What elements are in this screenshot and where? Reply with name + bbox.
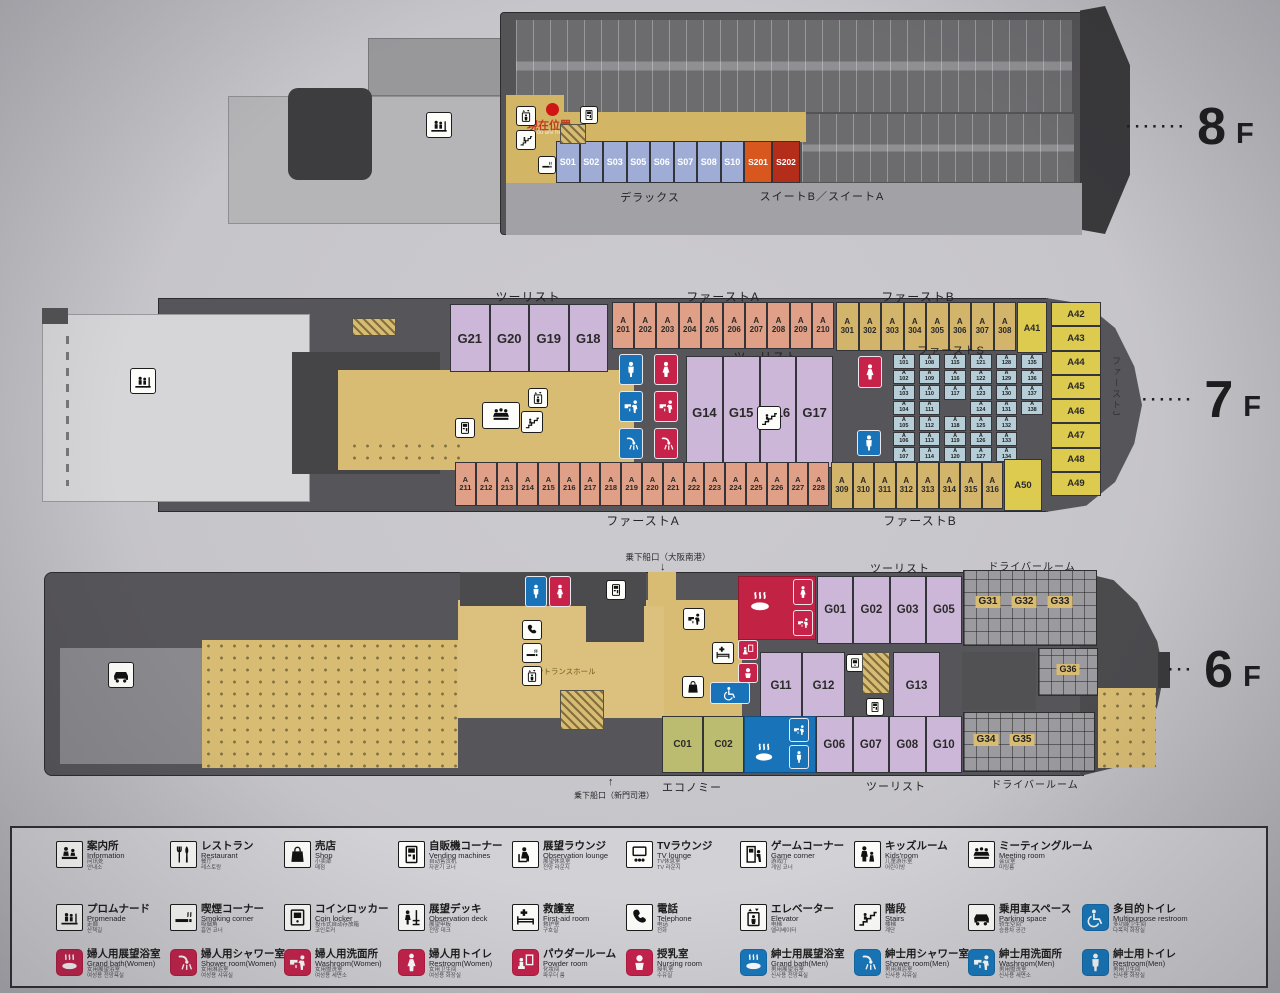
capsule-cabin: A 121	[970, 354, 992, 369]
cabin: A48	[1051, 448, 1101, 472]
capsule-cabin: A 125	[970, 416, 992, 431]
zone-label-tourist-top: ツーリスト	[495, 288, 560, 305]
legend-label-kr: 코인로커	[315, 929, 389, 935]
capsule-cabin: A 117	[944, 385, 966, 400]
driver-room-g31: G31	[976, 596, 1001, 608]
legend-label-kr: 파우더 룸	[543, 974, 616, 980]
deck7-stern-deck	[42, 314, 310, 502]
capsule-cabin: A 116	[944, 370, 966, 385]
legend-text: プロムナード Promenade 走廊 산책길	[87, 904, 150, 935]
legend-item: TVラウンジ TV lounge TV休息室 TV 라운지	[626, 841, 740, 872]
legend-item: ミーティングルーム Meeting room 会议室 미팅룸	[968, 841, 1082, 872]
cabin: A 223	[704, 462, 725, 506]
legend-label-kr: 안내소	[87, 866, 125, 872]
capsule-cabin: A 118	[944, 416, 966, 431]
legend-icon	[56, 841, 83, 868]
driver-room-g34: G34	[974, 734, 999, 746]
legend-icon	[56, 949, 83, 976]
cabin: A 314	[939, 462, 961, 509]
womens-restroom-icon	[858, 356, 882, 388]
legend-icon	[854, 904, 881, 931]
legend-icon	[854, 949, 881, 976]
legend-label-kr: 자판기 코너	[429, 866, 503, 872]
powder-room-icon	[738, 640, 758, 660]
floor-dots: ∙∙∙∙∙∙	[1142, 390, 1194, 410]
mens-washroom-icon	[619, 391, 643, 422]
legend-row-2: プロムナード Promenade 走廊 산책길 喫煙コーナー Smoking c…	[12, 904, 1266, 935]
zone-label-driver-bottom: ドライバールーム	[991, 776, 1079, 791]
deck6-restaurant-floor	[202, 640, 458, 768]
deck6-driver-lounge	[1098, 688, 1156, 768]
legend-icon	[626, 841, 653, 868]
legend-item: 紳士用洗面所 Washroom(Men) 男用盥洗室 신사용 세면소	[968, 949, 1082, 980]
womens-restroom-icon	[549, 576, 571, 607]
powder-room-icon	[683, 608, 705, 630]
legend-item: プロムナード Promenade 走廊 산책길	[56, 904, 170, 935]
mens-restroom-icon	[857, 430, 881, 456]
legend-icon	[1082, 949, 1109, 976]
capsule-cabin: A 133	[996, 432, 1018, 447]
telephone-icon	[522, 620, 542, 640]
cabin: S01	[556, 141, 580, 183]
cabin: A 301	[836, 302, 859, 351]
legend-item: キッズルーム Kids'room 儿童游乐室 어린이방	[854, 841, 968, 872]
first-aid-room-icon	[712, 642, 734, 664]
legend-item: 展望デッキ Observation deck 展望甲板 전망 데크	[398, 904, 512, 935]
cabin: A 207	[745, 302, 767, 349]
capsule-cabin: A 111	[919, 401, 941, 416]
stairs-icon	[521, 411, 543, 433]
legend-item: 授乳室 Nursing room 授乳室 수유실	[626, 949, 740, 980]
cabin: A45	[1051, 375, 1101, 399]
driver-room-g33: G33	[1048, 596, 1073, 608]
legend-label-kr: 신사용 전망욕실	[771, 974, 845, 980]
legend-text: 紳士用シャワー室 Shower room(Men) 男用淋浴室 신사용 샤워실	[885, 949, 969, 980]
legend-icon	[740, 904, 767, 931]
legend-icon	[968, 841, 995, 868]
capsule-cabin: A 103	[893, 385, 915, 400]
elevator-icon	[522, 666, 542, 686]
womens-washroom-icon	[654, 391, 678, 422]
legend-text: ゲームコーナー Game corner 游戏厅 게임 코너	[771, 841, 844, 872]
cabin: A 228	[808, 462, 829, 506]
capsule-cabin: A 114	[919, 447, 941, 462]
capsule-cabin: A 129	[996, 370, 1018, 385]
legend-text: TVラウンジ TV lounge TV休息室 TV 라운지	[657, 841, 712, 872]
capsule-cabin: A 132	[996, 416, 1018, 431]
cabin: S08	[697, 141, 721, 183]
cabin: A 222	[684, 462, 705, 506]
legend-item: ゲームコーナー Game corner 游戏厅 게임 코너	[740, 841, 854, 872]
legend-icon	[398, 841, 425, 868]
cabin: S03	[603, 141, 627, 183]
legend-icon	[626, 949, 653, 976]
deck8-superstructure-wing	[368, 38, 510, 96]
cabin: G14	[686, 356, 723, 468]
legend-icon	[512, 841, 539, 868]
gate-arrow-up: ↑	[608, 776, 614, 788]
legend-text: 救護室 First-aid room 救护室 구호실	[543, 904, 589, 935]
deck7-stairwell-hatch-top	[352, 318, 396, 336]
capsule-cabin: A 122	[970, 370, 992, 385]
legend-icon	[968, 904, 995, 931]
womens-washroom-icon	[793, 610, 813, 636]
cabin: C02	[703, 716, 744, 773]
zone-label-tourist-bottom: ツーリスト	[866, 778, 926, 794]
zone-label-first-a-bottom: ファーストA	[606, 512, 679, 529]
legend-label-kr: 다목적 화장실	[1113, 929, 1188, 935]
legend-icon	[170, 904, 197, 931]
deck6-economy-cabins: C01C02	[662, 716, 744, 773]
stairwell-hatch	[560, 124, 586, 144]
cabin: A42	[1051, 302, 1101, 326]
suite-cabin: S202	[772, 141, 800, 183]
floor-suffix: F	[1236, 120, 1254, 149]
deck7-lobby-seating	[348, 440, 468, 468]
legend-text: 案内所 Information 问讯处 안내소	[87, 841, 125, 872]
you-are-here-dot	[546, 103, 559, 116]
legend-item: 紳士用トイレ Restroom(Men) 男用卫生间 신사용 화장실	[1082, 949, 1196, 980]
cabin: C01	[662, 716, 703, 773]
cabin: A 309	[831, 462, 853, 509]
legend-icon	[170, 949, 197, 976]
legend-text: 売店 Shop 小卖部 매점	[315, 841, 336, 872]
multipurpose-restroom-icon	[710, 682, 750, 704]
cabin: A 202	[634, 302, 656, 349]
legend-icon	[170, 841, 197, 868]
cabin: G07	[853, 716, 890, 773]
legend-label-kr: 계단	[885, 929, 906, 935]
cabin: G03	[890, 576, 926, 644]
legend-text: コインロッカー Coin locker 投币式自动存放箱 코인로커	[315, 904, 389, 935]
capsule-cabin: A 112	[919, 416, 941, 431]
capsule-cabin: A 119	[944, 432, 966, 447]
cabin: A 206	[723, 302, 745, 349]
cabin: A 312	[896, 462, 918, 509]
mens-shower-icon	[619, 428, 643, 459]
mens-restroom-icon	[525, 576, 547, 607]
cabin: A 209	[790, 302, 812, 349]
legend-text: 婦人用トイレ Restroom(Women) 女用卫生间 여성용 화장실	[429, 949, 492, 980]
floor-label-8f: ∙∙∙∙∙∙∙ 8 F	[1126, 95, 1254, 159]
floor-number: 8	[1197, 101, 1226, 153]
cabin: A 302	[859, 302, 882, 351]
cabin: A 220	[642, 462, 663, 506]
capsule-cabin: A 136	[1021, 370, 1043, 385]
legend-icon	[1082, 904, 1109, 931]
floor-dots: ∙∙∙	[1168, 660, 1194, 680]
deck8-funnel	[288, 88, 372, 180]
deck8-deluxe-cabins: S01S02S03S05S06S07S08S10	[556, 141, 744, 183]
stairwell-hatch	[862, 652, 890, 694]
smoking-corner-icon	[522, 643, 542, 663]
floor-dots: ∙∙∙∙∙∙∙	[1126, 117, 1187, 137]
cabin: A 227	[788, 462, 809, 506]
cabin: A 201	[612, 302, 634, 349]
legend-label-kr: 신사용 세면소	[999, 974, 1062, 980]
legend-icon	[284, 949, 311, 976]
legend-icon	[284, 841, 311, 868]
legend-label-kr: 레스토랑	[201, 866, 254, 872]
legend-label-kr: 구호실	[543, 929, 589, 935]
legend-label-kr: 매점	[315, 866, 336, 872]
cabin: A 221	[663, 462, 684, 506]
shop-icon	[682, 676, 704, 698]
legend-text: 婦人用展望浴室 Grand bath(Women) 女用展望浴室 여성용 전망욕…	[87, 949, 161, 980]
zone-label-first-b-bottom: ファーストB	[883, 512, 956, 529]
legend-text: 展望ラウンジ Observation lounge 展望休息室 전망 라운지	[543, 841, 608, 872]
legend-icon	[740, 949, 767, 976]
vending-machine-icon	[455, 418, 475, 438]
legend-text: 紳士用トイレ Restroom(Men) 男用卫生间 신사용 화장실	[1113, 949, 1176, 980]
deck7-tourist-cabins-top: G21G20G19G18	[450, 304, 608, 372]
cabin: A 214	[517, 462, 538, 506]
cabin: G06	[816, 716, 853, 773]
legend-label-kr: 미팅룸	[999, 866, 1093, 872]
legend-label-kr: 게임 코너	[771, 866, 844, 872]
legend-item: 展望ラウンジ Observation lounge 展望休息室 전망 라운지	[512, 841, 626, 872]
deck7-first-s-cabin-grid: A 101A 102A 103A 104A 105A 106A 107A 108…	[893, 354, 1043, 462]
legend-text: 紳士用展望浴室 Grand bath(Men) 男用展望浴室 신사용 전망욕실	[771, 949, 845, 980]
cabin: A 203	[656, 302, 678, 349]
cabin: A 212	[476, 462, 497, 506]
floor-suffix: F	[1243, 393, 1261, 422]
cabin: A 224	[725, 462, 746, 506]
legend-text: 乗用車スペース Parking space 轿车空间 승용차 공간	[999, 904, 1071, 935]
capsule-cabin: A 105	[893, 416, 915, 431]
cabin: G20	[490, 304, 530, 372]
legend-label-kr: 전화	[657, 929, 692, 935]
legend-label-kr: 전망 데크	[429, 929, 487, 935]
deck6-tourist-cabins-row1: G01G02G03G05	[817, 576, 962, 644]
legend-icon	[626, 904, 653, 931]
deck8-cabin-block-top	[516, 20, 1072, 112]
floor-label-7f: ∙∙∙∙∙∙ 7 F	[1142, 368, 1261, 432]
cabin: S10	[721, 141, 745, 183]
floor-suffix: F	[1243, 663, 1261, 692]
legend-item: 婦人用トイレ Restroom(Women) 女用卫生间 여성용 화장실	[398, 949, 512, 980]
driver-room-g35: G35	[1010, 734, 1035, 746]
legend-icon	[398, 904, 425, 931]
legend-text: 授乳室 Nursing room 授乳室 수유실	[657, 949, 702, 980]
capsule-cabin: A 128	[996, 354, 1018, 369]
cabin: A 215	[538, 462, 559, 506]
zone-label-deluxe: デラックス	[620, 189, 680, 205]
elevator-icon	[528, 388, 548, 408]
cabin: A 219	[621, 462, 642, 506]
floor-number: 6	[1204, 644, 1233, 696]
vending-machine-icon	[580, 106, 598, 124]
capsule-cabin: A 107	[893, 447, 915, 462]
legend-item: 婦人用展望浴室 Grand bath(Women) 女用展望浴室 여성용 전망욕…	[56, 949, 170, 980]
gate-label-top: 乗下船口（大阪南港）	[625, 551, 710, 563]
deck7-mooring-dashes	[66, 336, 69, 486]
deck7-stern-notch	[42, 308, 68, 324]
legend-item: 紳士用展望浴室 Grand bath(Men) 男用展望浴室 신사용 전망욕실	[740, 949, 854, 980]
cabin: A 216	[559, 462, 580, 506]
cabin: S06	[650, 141, 674, 183]
promenade-icon	[426, 112, 452, 138]
capsule-cabin: A 138	[1021, 401, 1043, 416]
cabin: A 205	[701, 302, 723, 349]
capsule-cabin: A 130	[996, 385, 1018, 400]
cabin: A 303	[881, 302, 904, 351]
legend-item: 紳士用シャワー室 Shower room(Men) 男用淋浴室 신사용 샤워실	[854, 949, 968, 980]
legend-icon	[740, 841, 767, 868]
legend-label-kr: 여성용 화장실	[429, 974, 492, 980]
cabin: A49	[1051, 472, 1101, 496]
cabin: A 208	[767, 302, 789, 349]
capsule-cabin: A 106	[893, 432, 915, 447]
capsule-cabin: A 113	[919, 432, 941, 447]
deck7-first-j-cabins: A42A43A44A45A46A47A48A49	[1051, 302, 1101, 496]
capsule-cabin: A 131	[996, 401, 1018, 416]
capsule-cabin: A 102	[893, 370, 915, 385]
deck7-first-a-cabins-top: A 201A 202A 203A 204A 205A 206A 207A 208…	[612, 302, 834, 349]
cabin: A 311	[874, 462, 896, 509]
legend-label-kr: TV 라운지	[657, 866, 712, 872]
legend-label-kr: 전망 라운지	[543, 866, 608, 872]
legend-item: エレベーター Elevator 电梯 엘리베이터	[740, 904, 854, 935]
grand-staircase-hatch	[560, 690, 604, 730]
legend-icon	[284, 904, 311, 931]
legend-label-kr: 여성용 세면소	[315, 974, 382, 980]
cabin: A 315	[960, 462, 982, 509]
capsule-cabin: A 104	[893, 401, 915, 416]
legend-text: 階段 Stairs 楼梯 계단	[885, 904, 906, 935]
legend-label-kr: 승용차 공간	[999, 929, 1071, 935]
parking-car-icon	[108, 662, 134, 688]
legend-item: 多目的トイレ Multipurpose restroom 多功能卫生间 다목적 …	[1082, 904, 1196, 935]
mens-restroom-icon	[789, 745, 809, 769]
deck6-driver-rooms-top	[963, 570, 1097, 646]
legend-icon	[512, 949, 539, 976]
legend-item: 案内所 Information 问讯处 안내소	[56, 841, 170, 872]
cabin: G15	[723, 356, 760, 468]
cabin: A 210	[812, 302, 834, 349]
legend-item: 乗用車スペース Parking space 轿车空间 승용차 공간	[968, 904, 1082, 935]
cabin-g12: G12	[802, 652, 845, 720]
legend-text: 電話 Telephone 电话 전화	[657, 904, 692, 935]
legend-panel: 案内所 Information 问讯处 안내소 レストラン Restaurant…	[10, 826, 1268, 988]
cabin: G17	[796, 356, 833, 468]
cabin: S05	[627, 141, 651, 183]
womens-grand-bath-icon	[744, 586, 776, 618]
legend-label-kr: 신사용 샤워실	[885, 974, 969, 980]
legend-label-kr: 여성용 전망욕실	[87, 974, 161, 980]
legend-item: 売店 Shop 小卖部 매점	[284, 841, 398, 872]
smoking-corner-icon	[538, 156, 556, 174]
womens-restroom-icon	[654, 354, 678, 385]
legend-text: 婦人用シャワー室 Shower room(Women) 女用淋浴室 여성용 샤워…	[201, 949, 285, 980]
legend-item: 救護室 First-aid room 救护室 구호실	[512, 904, 626, 935]
cabin-g11: G11	[760, 652, 802, 720]
capsule-cabin: A 101	[893, 354, 915, 369]
vending-machine-icon	[866, 698, 884, 716]
deck8-bow	[1080, 6, 1130, 234]
driver-room-g36: G36	[1056, 664, 1079, 675]
legend-item: 婦人用シャワー室 Shower room(Women) 女用淋浴室 여성용 샤워…	[170, 949, 284, 980]
legend-item: 喫煙コーナー Smoking corner 吸烟角 흡연 코너	[170, 904, 284, 935]
cabin: G18	[569, 304, 609, 372]
legend-text: 喫煙コーナー Smoking corner 吸烟角 흡연 코너	[201, 904, 264, 935]
capsule-cabin: A 115	[944, 354, 966, 369]
legend-label-kr: 여성용 샤워실	[201, 974, 285, 980]
cabin: G19	[529, 304, 569, 372]
cabin: A 211	[455, 462, 476, 506]
legend-item: コインロッカー Coin locker 投币式自动存放箱 코인로커	[284, 904, 398, 935]
zone-label-first-j: ファーストJ	[1110, 356, 1123, 446]
legend-text: レストラン Restaurant 餐厅 레스토랑	[201, 841, 254, 872]
legend-item: 階段 Stairs 楼梯 계단	[854, 904, 968, 935]
deck6-void-block	[962, 652, 1036, 710]
capsule-cabin: A 108	[919, 354, 941, 369]
deck6-tourist-cabins-row3: G06G07G08G10	[816, 716, 962, 773]
cabin: A46	[1051, 399, 1101, 423]
cabin: G08	[889, 716, 926, 773]
cabin: S07	[674, 141, 698, 183]
legend-label-kr: 흡연 코너	[201, 929, 264, 935]
cabin: A43	[1051, 326, 1101, 350]
legend-label-kr: 어린이방	[885, 866, 948, 872]
womens-restroom-icon	[793, 579, 813, 605]
legend-item: 婦人用洗面所 Washroom(Women) 女用盥洗室 여성용 세면소	[284, 949, 398, 980]
cabin: A 225	[746, 462, 767, 506]
legend-text: エレベーター Elevator 电梯 엘리베이터	[771, 904, 834, 935]
legend-text: ミーティングルーム Meeting room 会议室 미팅룸	[999, 841, 1093, 872]
cabin-a50: A50	[1004, 459, 1042, 511]
legend-item: 電話 Telephone 电话 전화	[626, 904, 740, 935]
cabin: G21	[450, 304, 490, 372]
meeting-room-icon	[482, 402, 520, 429]
cabin: A44	[1051, 351, 1101, 375]
capsule-cabin: A 109	[919, 370, 941, 385]
elevator-icon	[516, 106, 536, 126]
legend-row-1: 案内所 Information 问讯处 안내소 レストラン Restaurant…	[12, 841, 1266, 872]
cabin: G01	[817, 576, 853, 644]
capsule-cabin: A 137	[1021, 385, 1043, 400]
cabin-g13: G13	[893, 652, 940, 720]
cabin: A 218	[600, 462, 621, 506]
cabin: S02	[580, 141, 604, 183]
deck-plan-sign: S01S02S03S05S06S07S08S10 S201S202 デラックス …	[0, 0, 1280, 993]
mens-grand-bath-icon	[749, 738, 779, 768]
promenade-icon	[130, 368, 156, 394]
zone-label-economy: エコノミー	[662, 779, 722, 795]
capsule-cabin: A 127	[970, 447, 992, 462]
legend-row-3: 婦人用展望浴室 Grand bath(Women) 女用展望浴室 여성용 전망욕…	[12, 949, 1266, 980]
legend-icon	[398, 949, 425, 976]
capsule-cabin: A 123	[970, 385, 992, 400]
legend-icon	[56, 904, 83, 931]
capsule-cabin: A 135	[1021, 354, 1043, 369]
stairs-icon	[757, 406, 781, 430]
cabin: A 204	[679, 302, 701, 349]
cabin: A 217	[580, 462, 601, 506]
deck6-funnel-casing	[586, 606, 644, 642]
capsule-cabin: A 120	[944, 447, 966, 462]
legend-icon	[854, 841, 881, 868]
cabin: G02	[853, 576, 889, 644]
legend-text: 紳士用洗面所 Washroom(Men) 男用盥洗室 신사용 세면소	[999, 949, 1062, 980]
cabin: A 226	[767, 462, 788, 506]
cabin-a41: A41	[1017, 302, 1047, 353]
floor-number: 7	[1204, 374, 1233, 426]
stairs-icon	[516, 130, 536, 150]
cabin: G05	[926, 576, 962, 644]
zone-label-suite: スイートB／スイートA	[760, 188, 885, 204]
legend-text: 自販機コーナー Vending machines 自动售货机 자판기 코너	[429, 841, 503, 872]
